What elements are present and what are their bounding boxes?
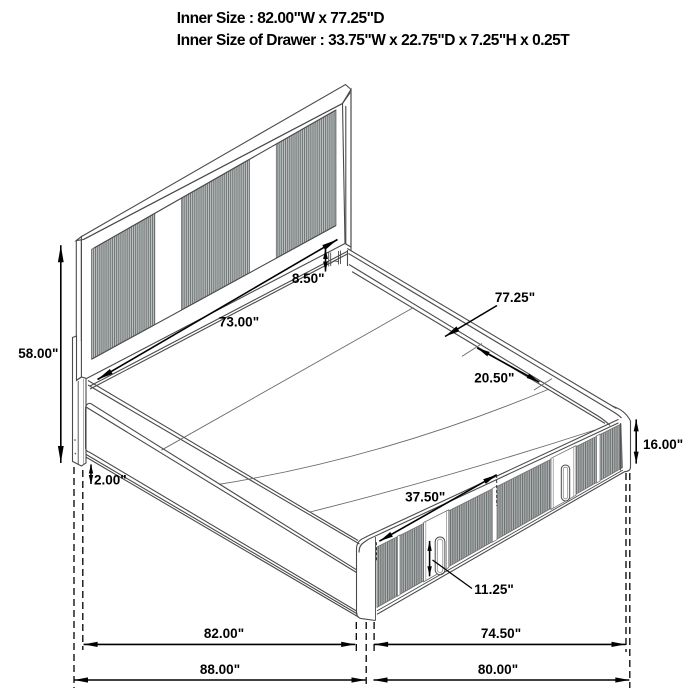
svg-text:2.00": 2.00": [94, 473, 127, 488]
svg-text:82.00": 82.00": [204, 626, 244, 641]
svg-text:77.25": 77.25": [495, 290, 535, 305]
svg-text:20.50": 20.50": [474, 370, 514, 385]
svg-text:73.00": 73.00": [219, 314, 259, 329]
svg-text:11.25": 11.25": [474, 582, 513, 597]
svg-text:Inner Size of Drawer : 33.75"W: Inner Size of Drawer : 33.75"W x 22.75"D…: [177, 32, 570, 49]
svg-text:80.00": 80.00": [478, 662, 518, 677]
svg-text:Inner Size : 82.00"W x 77.25"D: Inner Size : 82.00"W x 77.25"D: [177, 10, 385, 27]
svg-text:58.00": 58.00": [18, 346, 58, 361]
svg-text:16.00": 16.00": [643, 437, 683, 452]
svg-text:37.50": 37.50": [405, 490, 445, 505]
svg-text:74.50": 74.50": [481, 626, 521, 641]
svg-text:8.50": 8.50": [292, 271, 325, 286]
svg-text:88.00": 88.00": [200, 662, 240, 677]
